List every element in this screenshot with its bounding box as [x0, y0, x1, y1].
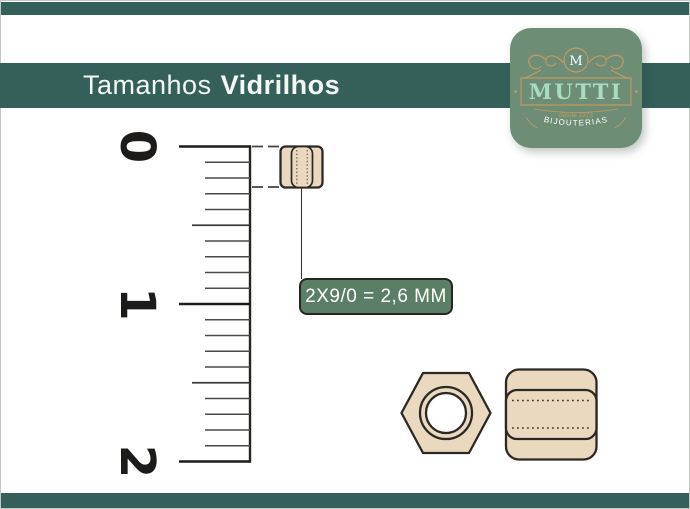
- page-title-bold: Vidrilhos: [221, 70, 341, 101]
- bead-middle-band: [292, 147, 313, 188]
- ruler-digit-label: 0: [109, 130, 165, 163]
- brand-logo: M MUTTI desde 1973 BIJOUTERIAS: [510, 28, 642, 148]
- logo-monogram: M: [569, 54, 582, 69]
- bugle-bead-at-scale: [281, 147, 323, 188]
- frame-dot-left-icon: [514, 90, 517, 93]
- ruler: 012: [109, 130, 250, 478]
- bead-front-view-hexagon: [402, 373, 491, 453]
- ruler-digit-label: 2: [109, 445, 165, 478]
- page-title-light: Tamanhos: [83, 70, 212, 101]
- flourish-left-icon: [524, 55, 563, 78]
- brand-name: MUTTI: [529, 79, 623, 104]
- measure-dash-marks: [252, 147, 279, 188]
- frame-dot-right-icon: [635, 90, 638, 93]
- ruler-ticks: [179, 147, 250, 462]
- ruler-digit-labels: 012: [109, 130, 165, 478]
- ruler-digit-label: 1: [109, 287, 165, 320]
- side-middle-band: [506, 390, 597, 439]
- bead-side-view: [506, 370, 597, 460]
- infographic-page: Tamanhos Vidrilhos M MUTTI desde 1973 BI…: [0, 0, 690, 509]
- size-callout-label: 2X9/0 = 2,6 MM: [299, 278, 453, 315]
- flourish-right-icon: [589, 55, 628, 78]
- size-callout-text: 2X9/0 = 2,6 MM: [305, 286, 447, 308]
- bead-hole: [426, 393, 466, 433]
- brand-logo-badge: M MUTTI desde 1973 BIJOUTERIAS: [510, 28, 642, 148]
